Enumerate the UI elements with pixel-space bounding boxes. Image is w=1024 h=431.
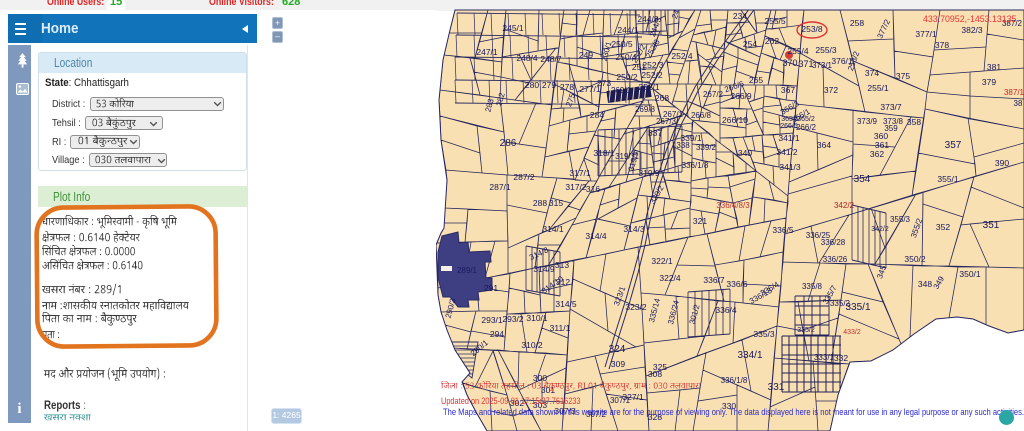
svg-text:280: 280: [525, 80, 539, 90]
svg-text:252/3: 252/3: [642, 60, 664, 70]
svg-text:254: 254: [743, 39, 757, 49]
svg-text:390: 390: [995, 158, 1009, 168]
svg-text:278: 278: [560, 82, 574, 92]
svg-text:341/3: 341/3: [779, 162, 801, 172]
svg-text:336/1/8: 336/1/8: [682, 161, 709, 170]
svg-text:376/1: 376/1: [831, 56, 853, 66]
svg-text:308: 308: [648, 369, 662, 379]
svg-text:335/3: 335/3: [753, 329, 775, 339]
svg-text:289/1: 289/1: [457, 266, 478, 275]
svg-text:358: 358: [907, 117, 921, 127]
svg-text:293/1: 293/1: [481, 315, 503, 325]
svg-text:341/2: 341/2: [776, 147, 798, 157]
svg-text:335/2: 335/2: [797, 327, 815, 334]
svg-text:266/9: 266/9: [730, 91, 752, 101]
svg-text:316: 316: [586, 184, 600, 194]
svg-text:335/8: 335/8: [802, 282, 823, 291]
svg-text:334/1: 334/1: [737, 350, 762, 361]
svg-text:258: 258: [850, 18, 864, 28]
svg-text:350/2: 350/2: [904, 254, 926, 264]
svg-text:370: 370: [782, 58, 797, 68]
svg-text:321: 321: [693, 216, 707, 226]
svg-text:309: 309: [611, 359, 625, 369]
svg-text:273: 273: [597, 78, 611, 88]
svg-text:284: 284: [590, 110, 604, 120]
svg-text:291: 291: [484, 283, 498, 293]
svg-text:333/1: 333/1: [814, 353, 835, 362]
svg-text:315: 315: [549, 198, 563, 208]
svg-text:355/3: 355/3: [890, 215, 911, 224]
svg-text:267/2: 267/2: [703, 90, 724, 99]
svg-text:310/2: 310/2: [521, 340, 543, 350]
svg-text:311/1: 311/1: [550, 323, 571, 333]
svg-text:322/4: 322/4: [659, 273, 681, 283]
svg-text:336/4: 336/4: [715, 305, 737, 315]
svg-text:268: 268: [655, 93, 669, 103]
svg-text:367: 367: [781, 85, 795, 95]
svg-text:340: 340: [738, 148, 752, 158]
svg-text:314/4: 314/4: [585, 231, 607, 241]
svg-text:267/3: 267/3: [656, 117, 677, 126]
svg-text:342/2: 342/2: [834, 201, 855, 210]
svg-text:266/8: 266/8: [691, 111, 712, 120]
svg-text:288: 288: [533, 198, 547, 208]
svg-text:245/1: 245/1: [502, 23, 524, 33]
svg-text:336/6: 336/6: [726, 279, 748, 289]
svg-text:38: 38: [1014, 99, 1023, 108]
svg-text:307/1: 307/1: [610, 396, 631, 405]
svg-text:318/1: 318/1: [593, 148, 615, 158]
svg-text:357: 357: [945, 140, 962, 151]
svg-text:293/2: 293/2: [502, 314, 524, 324]
svg-text:265: 265: [749, 75, 763, 85]
svg-text:331: 331: [768, 382, 785, 393]
svg-text:314/1: 314/1: [542, 224, 564, 234]
svg-text:387/1: 387/1: [1004, 88, 1024, 97]
svg-text:266/10: 266/10: [722, 115, 748, 125]
svg-text:294: 294: [490, 329, 504, 339]
svg-text:348: 348: [918, 279, 932, 289]
svg-text:322/1: 322/1: [651, 256, 673, 266]
svg-text:314/3: 314/3: [623, 224, 645, 234]
svg-text:332: 332: [834, 353, 848, 363]
svg-text:373/1: 373/1: [812, 61, 833, 70]
svg-text:317/1: 317/1: [569, 168, 591, 178]
svg-text:250/5: 250/5: [611, 39, 633, 49]
svg-text:286: 286: [500, 138, 517, 149]
svg-text:336/7: 336/7: [703, 275, 725, 285]
svg-text:336/5: 336/5: [772, 225, 794, 235]
svg-text:335/2: 335/2: [830, 299, 851, 308]
svg-text:314/9: 314/9: [533, 264, 555, 274]
svg-text:314/5: 314/5: [555, 299, 577, 309]
svg-text:338: 338: [676, 141, 690, 150]
svg-text:362: 362: [870, 149, 884, 159]
svg-text:248/7: 248/7: [540, 54, 562, 64]
svg-text:313: 313: [555, 260, 569, 270]
svg-text:266/2: 266/2: [796, 123, 817, 132]
svg-text:337: 337: [648, 128, 662, 138]
svg-text:352: 352: [936, 222, 950, 232]
svg-text:319/9: 319/9: [638, 168, 660, 178]
svg-text:433/2: 433/2: [843, 329, 861, 336]
svg-text:255/4: 255/4: [787, 46, 809, 56]
svg-text:375: 375: [896, 71, 910, 81]
svg-text:341/1: 341/1: [778, 133, 800, 143]
svg-text:252/4: 252/4: [671, 51, 693, 61]
svg-text:350/1: 350/1: [959, 269, 981, 279]
svg-text:336/4/8/3: 336/4/8/3: [716, 201, 750, 210]
svg-text:379: 379: [982, 77, 996, 87]
svg-text:248/4: 248/4: [516, 53, 538, 63]
svg-text:377/1: 377/1: [915, 29, 937, 39]
svg-text:279: 279: [542, 80, 556, 90]
svg-text:354: 354: [854, 174, 871, 185]
svg-text:250/4: 250/4: [615, 52, 637, 62]
svg-text:336/26: 336/26: [823, 255, 848, 264]
svg-text:365/2: 365/2: [797, 116, 815, 123]
svg-text:339/2: 339/2: [696, 143, 717, 152]
svg-text:312: 312: [556, 277, 570, 287]
svg-text:336/1/8: 336/1/8: [721, 376, 748, 385]
svg-text:355/1: 355/1: [937, 174, 959, 184]
svg-text:323/2: 323/2: [625, 302, 647, 312]
svg-text:252/2: 252/2: [641, 70, 663, 80]
svg-text:269/1: 269/1: [611, 86, 632, 95]
svg-text:342/2: 342/2: [871, 226, 889, 233]
svg-text:287/1: 287/1: [489, 182, 511, 192]
svg-text:244/1: 244/1: [617, 25, 639, 35]
svg-text:433.70952,-1453.13135: 433.70952,-1453.13135: [923, 14, 1017, 24]
svg-text:269/8: 269/8: [635, 105, 656, 114]
svg-text:381: 381: [987, 62, 1001, 72]
svg-text:255/3: 255/3: [815, 45, 837, 55]
svg-text:255/5: 255/5: [764, 16, 786, 26]
svg-text:255/1: 255/1: [867, 83, 889, 93]
svg-text:324: 324: [609, 344, 626, 355]
svg-text:253/8: 253/8: [801, 24, 823, 34]
svg-text:382/3: 382/3: [961, 25, 983, 35]
svg-text:287/2: 287/2: [513, 172, 535, 182]
svg-text:364: 364: [817, 140, 831, 150]
svg-text:249: 249: [579, 50, 593, 60]
svg-text:317/2: 317/2: [565, 182, 587, 192]
svg-text:365/1: 365/1: [781, 116, 799, 123]
svg-text:252/1: 252/1: [638, 82, 660, 92]
svg-text:378: 378: [935, 40, 949, 50]
svg-text:373/9: 373/9: [857, 117, 878, 126]
svg-text:336/28: 336/28: [821, 238, 846, 247]
svg-text:372: 372: [824, 85, 838, 95]
svg-text:234: 234: [733, 11, 747, 21]
svg-text:247/1: 247/1: [476, 47, 498, 57]
svg-text:310/1: 310/1: [526, 313, 548, 323]
svg-text:262: 262: [765, 36, 779, 46]
svg-text:250/2: 250/2: [616, 72, 638, 82]
svg-text:373/7: 373/7: [880, 102, 902, 112]
svg-text:351: 351: [983, 220, 1000, 231]
svg-text:374: 374: [865, 68, 879, 78]
